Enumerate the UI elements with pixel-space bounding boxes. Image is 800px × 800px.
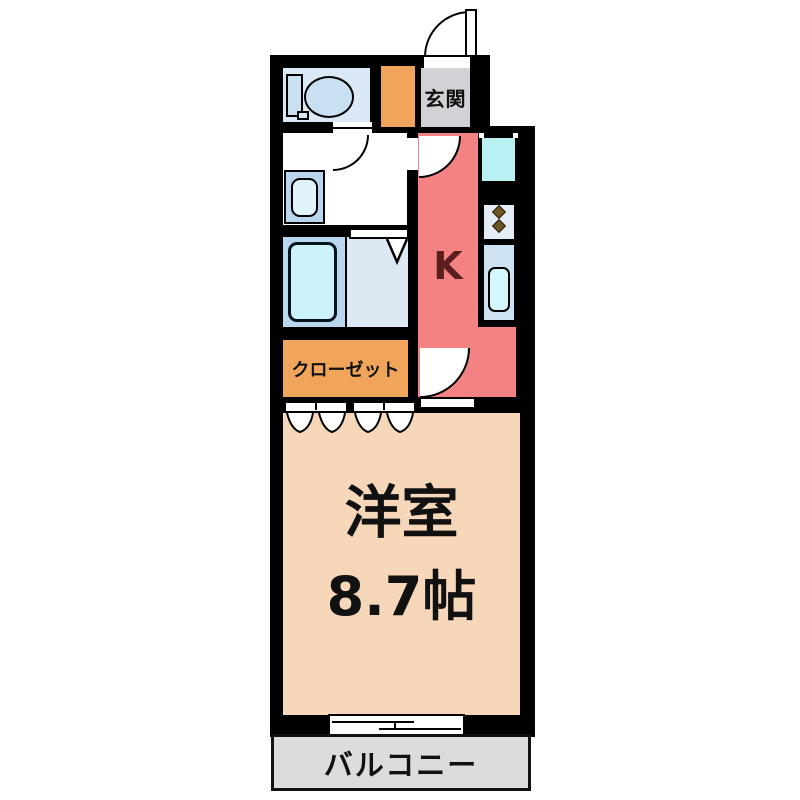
bathtub-icon	[288, 242, 337, 322]
washroom-basin-icon	[291, 178, 318, 217]
room-balcony: バルコニー	[271, 734, 531, 791]
bath-folding-door-icon	[384, 238, 410, 265]
closet-folding-door-icon	[352, 401, 416, 437]
entrance-threshold	[424, 55, 470, 68]
folding-door-track	[284, 401, 348, 413]
sliding-window-icon	[328, 714, 465, 736]
genkan-label: 玄関	[425, 83, 467, 112]
folding-door-swags	[352, 413, 416, 437]
room-genkan: 玄関	[421, 68, 470, 127]
main-room-size: 8.7帖	[283, 563, 520, 631]
entrance-door-arc-icon	[424, 11, 470, 57]
washroom-door-opening	[407, 138, 418, 170]
room-kitchen-lower	[478, 327, 516, 397]
room-closet: クローゼット	[283, 340, 408, 397]
folding-door-swags	[284, 413, 348, 437]
toilet-door-opening	[333, 122, 372, 133]
kitchen-sink-icon	[488, 267, 510, 312]
main-room-door-leaf-icon	[419, 397, 476, 409]
storage-block	[381, 66, 415, 127]
balcony-label: バルコニー	[324, 742, 478, 784]
floor-plan: 玄関 K クローゼット 洋室 8.7帖	[0, 0, 800, 800]
closet-folding-door-icon	[284, 401, 348, 437]
entrance-door-leaf-icon	[465, 9, 477, 57]
main-room-name: 洋室	[283, 478, 520, 549]
closet-label: クローゼット	[292, 356, 400, 382]
folding-door-track	[352, 401, 416, 413]
washer-pan-tick	[479, 133, 484, 138]
washer-pan-tick	[513, 133, 518, 138]
washer-pan-icon	[479, 135, 518, 184]
main-room-label: 洋室 8.7帖	[283, 478, 520, 631]
toilet-flush-icon	[297, 111, 309, 120]
kitchen-label: K	[418, 244, 478, 288]
toilet-bowl-icon	[304, 76, 354, 118]
